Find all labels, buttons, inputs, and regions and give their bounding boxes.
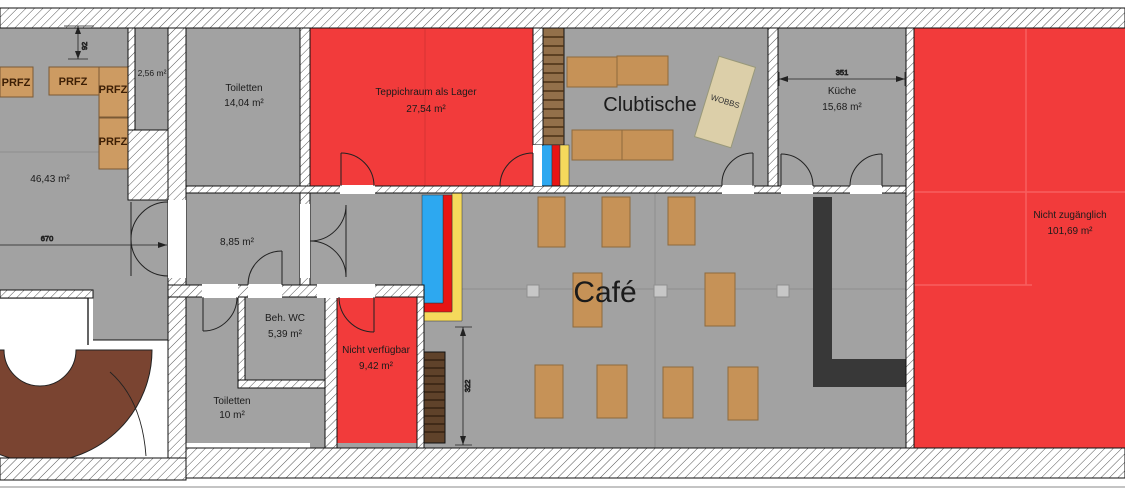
strip-yellow: [560, 145, 569, 186]
floor-plan-drawing: WOBBS: [0, 0, 1125, 500]
floor-room-256: [135, 28, 168, 130]
nicht-verfuegbar-area: 9,42 m²: [359, 361, 394, 372]
wall-outer-bottom: [180, 448, 1125, 478]
strip-blue-rect: [422, 195, 443, 303]
nicht-zugaenglich-name: Nicht zugänglich: [1033, 210, 1106, 221]
club-table: [617, 56, 668, 85]
floor-room-46-ext: [93, 290, 168, 340]
prfz-label: PRFZ: [99, 84, 128, 96]
toiletten-bottom-name: Toiletten: [213, 396, 250, 407]
kueche-name: Küche: [828, 86, 857, 97]
floor-plan: WOBBS: [0, 0, 1125, 500]
wall-toiletten-nv: [325, 297, 337, 448]
cafe-table: [728, 367, 758, 420]
room-885-area: 8,85 m²: [220, 237, 255, 248]
cafe-table: [668, 197, 695, 245]
club-table: [567, 57, 617, 87]
wall-outer-bottom-left: [0, 458, 186, 480]
prfz-label: PRFZ: [99, 136, 128, 148]
wall-room256-left: [128, 28, 135, 130]
cafe-table: [538, 197, 565, 247]
wall-kueche-red: [906, 28, 914, 448]
wall-outer-top: [0, 8, 1125, 28]
room-256-area: 2,56 m²: [138, 68, 167, 78]
floor-nicht-zugaenglich-red: [914, 28, 1125, 448]
toiletten-top-area: 14,04 m²: [224, 98, 264, 109]
kueche-area: 15,68 m²: [822, 102, 862, 113]
cafe-table: [705, 273, 735, 326]
clubtische-name: Clubtische: [603, 94, 696, 116]
route-strips-stairs: [541, 145, 569, 186]
curved-ramp: [0, 350, 152, 462]
toiletten-bottom-area: 10 m²: [219, 410, 245, 421]
prfz-label: PRFZ: [2, 77, 31, 89]
wall-teppich-stairs: [533, 28, 543, 145]
staircase-bottom: [424, 352, 445, 443]
column: [654, 285, 667, 297]
route-strips-cafe: [422, 193, 462, 321]
teppichraum-name: Teppichraum als Lager: [375, 87, 477, 98]
dim-351-label: 351: [836, 68, 849, 77]
floor-toiletten-bottom-ext: [186, 388, 325, 443]
wall-behwc-bottom: [238, 380, 325, 388]
wall-block-under-256: [128, 130, 168, 200]
nicht-zugaenglich-area: 101,69 m²: [1047, 226, 1093, 237]
dim-92-label: 92: [80, 42, 89, 50]
cafe-name: Café: [573, 276, 636, 309]
club-table: [622, 130, 673, 160]
wall-club-kueche: [768, 28, 778, 186]
strip-blue: [541, 145, 552, 186]
prfz-label: PRFZ: [59, 76, 88, 88]
cafe-table: [602, 197, 630, 247]
room-46-area: 46,43 m²: [30, 174, 70, 185]
cafe-table: [663, 367, 693, 418]
cafe-table: [535, 365, 563, 418]
strip-red: [552, 145, 560, 186]
beh-wc-area: 5,39 m²: [268, 329, 303, 340]
club-table: [572, 130, 622, 160]
wall-toiletten-teppich: [300, 28, 310, 193]
dim-322-label: 322: [463, 380, 472, 393]
dim-670-label: 670: [41, 234, 54, 243]
column: [777, 285, 789, 297]
column: [527, 285, 539, 297]
wall-ramp-room-top: [0, 290, 93, 298]
wall-behwc-left: [238, 297, 245, 380]
staircase-top: [543, 28, 564, 145]
wall-nv-right: [417, 297, 424, 448]
cafe-table: [597, 365, 627, 418]
beh-wc-name: Beh. WC: [265, 313, 305, 324]
toiletten-top-name: Toiletten: [225, 83, 262, 94]
teppichraum-area: 27,54 m²: [406, 104, 446, 115]
nicht-verfuegbar-name: Nicht verfügbar: [342, 345, 410, 356]
